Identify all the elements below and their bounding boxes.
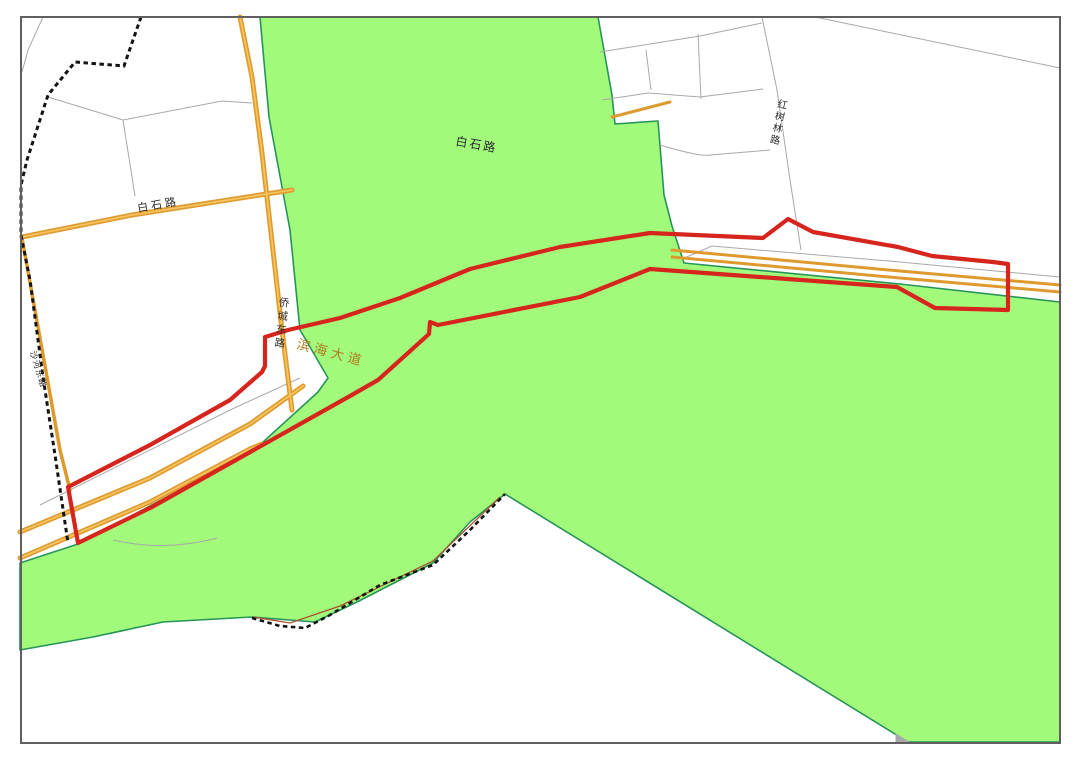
planning-map: 白石路 白石路 侨城东路 滨海大道 红树林路 沙河东路 <box>0 0 1080 763</box>
map-canvas: 白石路 白石路 侨城东路 滨海大道 红树林路 沙河东路 <box>0 0 1080 763</box>
